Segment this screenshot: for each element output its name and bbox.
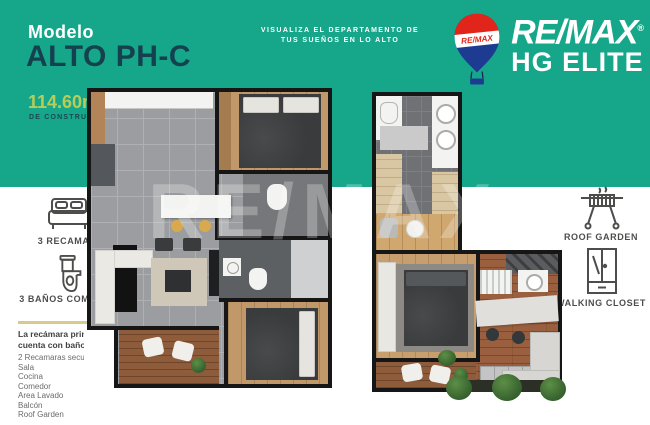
pillow [243, 97, 279, 113]
bar-stool [512, 331, 525, 344]
flyer-canvas: { "canvas": {"width": 650, "height": 425… [0, 0, 650, 425]
balcony-deck [119, 330, 219, 384]
tagline-line-1: VISUALIZA EL DEPARTAMENTO DE [245, 26, 435, 36]
side-table [406, 220, 424, 238]
closet-icon [583, 246, 621, 296]
tv-console [209, 250, 219, 296]
amenity-item: Balcón [18, 401, 111, 411]
brand-wordmark: RE/MAX® [511, 12, 644, 48]
toilet [267, 184, 287, 210]
shower-tray [380, 126, 428, 150]
washer-door [227, 262, 239, 274]
pillow [299, 311, 315, 377]
closet-cabinet-right [432, 172, 458, 220]
amenity-item: Roof Garden [18, 410, 111, 420]
tagline-line-2: TUS SUEÑOS EN LO ALTO [245, 36, 435, 46]
pillow [283, 97, 319, 113]
brand-text-block: RE/MAX® HG ELITE [511, 12, 644, 76]
sofa [95, 250, 115, 324]
plan1-corner-cutout [84, 330, 116, 396]
toilet-icon [50, 252, 88, 296]
tagline: VISUALIZA EL DEPARTAMENTO DE TUS SUEÑOS … [245, 26, 435, 46]
gold-divider [18, 321, 90, 324]
remax-balloon-icon: RE/MAX [449, 12, 505, 88]
closet-cabinet-left [376, 154, 402, 214]
toilet [380, 102, 398, 124]
entry-nook [91, 144, 115, 186]
garden-bush [540, 377, 566, 401]
grill-icon [576, 186, 628, 232]
chaise-bench [378, 262, 396, 352]
roof-garden-label: ROOF GARDEN [541, 232, 650, 242]
garden-bush [492, 374, 522, 401]
bar-stool [486, 328, 499, 341]
model-name-title: ALTO PH-C [26, 40, 191, 74]
sink [436, 130, 456, 150]
bar-counter [475, 295, 559, 327]
potted-plant [191, 358, 206, 373]
toilet [249, 268, 267, 290]
bar-stool [199, 220, 211, 232]
floorplan-level-2-bath-closet [372, 92, 462, 254]
bar-stool [171, 220, 183, 232]
floorplan-level-2-roof-garden [372, 250, 562, 392]
dining-chair [155, 238, 173, 251]
laundry-cabinet [91, 92, 105, 150]
interior-wall [224, 302, 228, 384]
bbq-grill [480, 270, 512, 294]
garden-bush [446, 376, 472, 400]
trademark-symbol: ® [637, 23, 644, 33]
coffee-table [165, 270, 191, 292]
floorplan-level-1 [87, 88, 332, 388]
brand-office-name: HG ELITE [511, 48, 644, 76]
remax-logo: RE/MAX RE/MAX® HG ELITE [449, 12, 644, 88]
kitchen-counter [103, 92, 213, 109]
balcony-side-wall [114, 330, 118, 388]
kitchen-island [161, 195, 231, 218]
bed-blanket [406, 272, 466, 286]
sink [526, 274, 543, 291]
garden-bush [438, 350, 456, 366]
sink [436, 104, 456, 124]
dining-chair [183, 238, 201, 251]
patio-chair [401, 362, 424, 382]
hall-landing [291, 240, 328, 302]
brand-wordmark-text: RE/MAX [511, 13, 637, 51]
dressing-chair [380, 218, 398, 238]
